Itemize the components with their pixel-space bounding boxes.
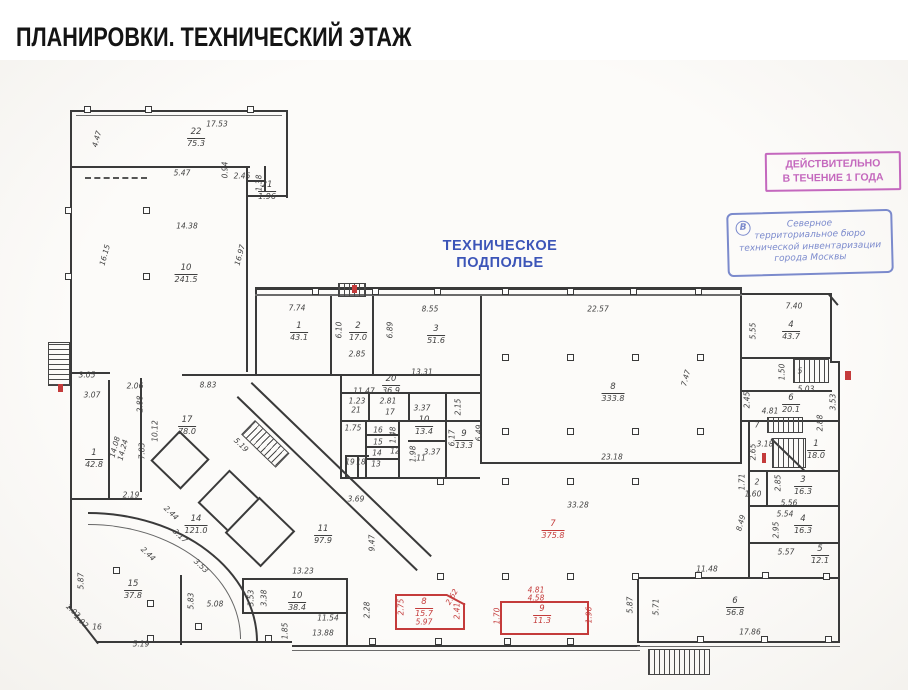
dimension-label: 5.57: [778, 548, 795, 556]
room-number: 15: [124, 580, 142, 591]
dimension-label: 13.23: [292, 567, 313, 575]
column: [265, 635, 272, 642]
room-label: 143.1: [290, 322, 308, 342]
dimension-label: 5.08: [207, 600, 224, 608]
dimension-label: 3.53: [829, 394, 837, 411]
room-area: 12.1: [811, 556, 829, 565]
dimension-label: 4.47: [91, 130, 103, 148]
column: [632, 478, 639, 485]
room-label: 443.7: [782, 321, 800, 341]
room-area: 18.0: [807, 451, 825, 460]
dimension-label: 2.15: [454, 399, 462, 416]
wall: [637, 641, 840, 643]
dimension-label: 3.37: [414, 404, 431, 412]
dimension-label: 5.83: [187, 593, 195, 610]
dimension-label: 9.47: [368, 535, 376, 552]
dimension-label: 3.07: [84, 391, 101, 399]
column: [195, 623, 202, 630]
wall: [246, 166, 248, 372]
dimension-label: 5.97: [416, 618, 433, 626]
room-area: 38.4: [288, 603, 306, 612]
wall: [70, 110, 288, 112]
column: [695, 288, 702, 295]
dimension-label: 3.37: [424, 448, 441, 456]
dimension-label: 13.31: [411, 368, 432, 376]
column: [502, 288, 509, 295]
dimension-label: 16: [92, 623, 102, 631]
dimension-label: 22.57: [587, 305, 608, 313]
dimension-label: 11.48: [696, 565, 717, 573]
bti-stamp-line4: города Москвы: [774, 252, 846, 264]
dimension-label: 1.60: [745, 490, 762, 498]
room-label: 316.3: [794, 476, 812, 496]
room-area: 1.96: [258, 192, 276, 201]
room-number: 7: [542, 520, 565, 531]
room-number: 4: [782, 321, 800, 332]
dimension-label: 3.53: [247, 590, 255, 607]
red-room-wall: [395, 594, 447, 596]
dimension-label: 2.65: [749, 444, 757, 461]
column: [437, 573, 444, 580]
wall-inner: [637, 646, 840, 647]
dimension-label: 5.87: [77, 573, 85, 590]
room-area: 78.0: [178, 427, 196, 436]
dimension-label: 16.97: [234, 244, 247, 267]
dimension-label: 5.19: [133, 640, 150, 648]
wall-inner: [292, 650, 640, 651]
column: [825, 636, 832, 643]
wall: [408, 392, 410, 420]
dimension-label: 13: [371, 460, 381, 468]
room-label: 1537.8: [124, 580, 142, 600]
dimension-label: 1.70: [493, 608, 501, 625]
dimension-label: 6.10: [335, 322, 343, 339]
validity-stamp: ДЕЙСТВИТЕЛЬНО В ТЕЧЕНИЕ 1 ГОДА: [765, 151, 902, 192]
dimension-label: 2.06: [127, 382, 144, 390]
column: [567, 354, 574, 361]
room-area: 17.0: [349, 333, 367, 342]
dimension-label: 1.98: [409, 446, 417, 463]
room-number: 6: [726, 597, 744, 608]
wall: [340, 420, 480, 422]
dimension-label: 16.15: [99, 244, 112, 267]
column: [697, 354, 704, 361]
column: [84, 106, 91, 113]
wall: [70, 110, 72, 608]
dimension-label: 2.81: [380, 397, 397, 405]
wall: [408, 440, 445, 442]
wall: [748, 470, 838, 472]
dimension-label: 7.83: [138, 443, 146, 460]
wall: [340, 477, 480, 479]
room-label: 416.3: [794, 515, 812, 535]
room-area: 75.3: [187, 139, 205, 148]
room-number: 3: [794, 476, 812, 487]
room-label: 656.8: [726, 597, 744, 617]
dimension-label: 17.53: [206, 120, 227, 128]
room-area: 241.5: [175, 275, 198, 284]
wall: [365, 422, 367, 477]
room-label: 2275.3: [187, 128, 205, 148]
dimension-label: 2.75: [397, 599, 405, 616]
room-area: 42.8: [85, 460, 103, 469]
room-number: 8: [415, 598, 433, 609]
room-area: 375.8: [542, 531, 565, 540]
dimension-label: 5.56: [781, 499, 798, 507]
dashed-wall: [85, 177, 147, 179]
wall: [368, 392, 370, 420]
wall: [830, 293, 832, 363]
room-number: 9: [533, 605, 551, 616]
dimension-label: 7: [755, 421, 760, 429]
wall: [480, 462, 742, 464]
page-title: ПЛАНИРОВКИ. ТЕХНИЧЕСКИЙ ЭТАЖ: [16, 22, 412, 53]
dimension-label: 8.55: [422, 305, 439, 313]
wall: [740, 287, 742, 464]
column: [435, 638, 442, 645]
column: [632, 573, 639, 580]
dimension-label: 2.45: [234, 172, 251, 180]
dimension-label: 13.88: [312, 629, 333, 637]
room-area: 121.0: [185, 526, 208, 535]
room-number: 17: [178, 416, 196, 427]
dimension-label: 1.50: [778, 364, 786, 381]
dimension-label: 5.71: [652, 599, 660, 616]
bti-stamp-line3: технической инвентаризации: [739, 240, 881, 254]
room-number: 9: [455, 430, 473, 441]
dimension-label: 18: [356, 458, 366, 466]
room-number: 1: [85, 449, 103, 460]
dimension-label: 5.47: [174, 169, 191, 177]
dimension-label: 3.05: [79, 371, 96, 379]
dimension-label: 17.86: [739, 628, 760, 636]
dimension-label: 4.58: [528, 594, 545, 602]
room-label: 1038.4: [288, 592, 306, 612]
room-label: 142.8: [85, 449, 103, 469]
technical-subfloor-line1: ТЕХНИЧЕСКОЕ: [443, 238, 558, 254]
column: [502, 478, 509, 485]
dimension-label: 4.81: [762, 407, 779, 415]
dimension-label: 6.49: [475, 425, 483, 442]
column: [434, 288, 441, 295]
wall: [346, 578, 348, 645]
staircase: [772, 438, 806, 468]
room-label: 512.1: [811, 545, 829, 565]
room-number: 11: [314, 525, 332, 536]
dimension-label: 16: [373, 426, 383, 434]
room-area: 11.3: [533, 616, 551, 625]
room-number: 5: [811, 545, 829, 556]
wall: [255, 374, 482, 376]
dimension-label: 2.19: [123, 491, 140, 499]
curved-wall-inner: [88, 524, 241, 639]
red-room-wall: [463, 603, 465, 630]
dimension-label: 17: [385, 408, 395, 416]
dimension-label: 2.88: [136, 396, 144, 413]
wall: [365, 458, 398, 460]
wall: [838, 361, 840, 643]
wall: [242, 578, 348, 580]
dimension-label: 7.74: [289, 304, 306, 312]
room-label: 351.6: [427, 325, 445, 345]
red-mark: [58, 384, 63, 392]
dimension-label: 10.12: [151, 420, 159, 441]
room-label: 8333.8: [602, 383, 625, 403]
wall: [108, 380, 110, 498]
dimension-label: 8.49: [735, 514, 747, 532]
dimension-label: 3.18: [757, 440, 774, 448]
room-number: 10: [288, 592, 306, 603]
room-area: 20.1: [782, 405, 800, 414]
room-area: 13.4: [415, 427, 433, 436]
room-label: 1197.9: [314, 525, 332, 545]
dimension-label: 2: [755, 478, 760, 486]
wall: [372, 296, 374, 376]
room-label: 217.0: [349, 322, 367, 342]
column: [632, 428, 639, 435]
bti-stamp-line1: Северное: [787, 218, 833, 229]
column: [630, 288, 637, 295]
room-label: 913.3: [455, 430, 473, 450]
wall: [748, 542, 838, 544]
technical-subfloor-line2: ПОДПОЛЬЕ: [456, 255, 543, 271]
column: [369, 638, 376, 645]
column: [567, 478, 574, 485]
column: [502, 354, 509, 361]
dimension-label: 7.40: [786, 302, 803, 310]
column: [567, 428, 574, 435]
dimension-label: 3.69: [348, 495, 365, 503]
room-area: 51.6: [427, 336, 445, 345]
room-area: 97.9: [314, 536, 332, 545]
dimension-label: 2.88: [816, 415, 824, 432]
staircase: [48, 342, 70, 386]
dimension-label: 5.55: [749, 323, 757, 340]
dimension-label: 1.85: [281, 623, 289, 640]
room-number: 6: [782, 394, 800, 405]
dimension-label: 0.94: [221, 162, 229, 179]
column: [143, 207, 150, 214]
dimension-label: 3.38: [260, 590, 268, 607]
room-area: 13.3: [455, 441, 473, 450]
dimension-label: 2.28: [363, 602, 371, 619]
validity-stamp-line2: В ТЕЧЕНИЕ 1 ГОДА: [782, 171, 883, 184]
dimension-label: 5.54: [777, 510, 794, 518]
wall: [637, 577, 838, 579]
wall-inner: [76, 115, 282, 116]
room-label: 911.3: [533, 605, 551, 625]
dimension-label: 11.54: [317, 614, 338, 622]
dimension-label: 21: [351, 406, 361, 414]
room-area: 37.8: [124, 591, 142, 600]
red-mark: [762, 453, 766, 463]
wall: [740, 293, 832, 295]
red-mark: [352, 285, 357, 293]
wall: [286, 110, 288, 198]
dimension-label: 6.89: [386, 322, 394, 339]
room-label: 620.1: [782, 394, 800, 414]
staircase: [767, 417, 803, 433]
floor-plan-drawing: ТЕХНИЧЕСКОЕ ПОДПОЛЬЕ ДЕЙСТВИТЕЛЬНО В ТЕЧ…: [0, 60, 908, 690]
dimension-label: 14: [372, 449, 382, 457]
column: [823, 573, 830, 580]
dimension-label: 2.45: [743, 392, 751, 409]
room-label: 815.7: [415, 598, 433, 618]
dimension-label: 1.48: [389, 427, 397, 444]
dimension-label: 5.87: [626, 597, 634, 614]
room-area: 43.7: [782, 332, 800, 341]
column: [143, 273, 150, 280]
column: [567, 288, 574, 295]
bti-stamp-letter: В: [735, 221, 750, 236]
room-number: 22: [187, 128, 205, 139]
column: [113, 567, 120, 574]
room-number: 20: [382, 375, 400, 386]
column: [567, 573, 574, 580]
room-number: 2: [349, 322, 367, 333]
room-number: 10: [175, 264, 198, 275]
room-area: 333.8: [602, 394, 625, 403]
wall: [637, 577, 639, 643]
column: [437, 478, 444, 485]
room-number: 10: [415, 416, 433, 427]
validity-stamp-line1: ДЕЙСТВИТЕЛЬНО: [785, 157, 880, 170]
room-label: 118.0: [807, 440, 825, 460]
dimension-label: 11.47: [353, 387, 374, 395]
column: [567, 638, 574, 645]
red-room-wall: [395, 628, 465, 630]
room-area: 43.1: [290, 333, 308, 342]
dimension-label: 2.85: [349, 350, 366, 358]
dimension-label: 1.71: [738, 474, 746, 491]
column: [502, 573, 509, 580]
dimension-label: 19: [345, 458, 355, 466]
scanned-floor-plan-page: { "title": "ПЛАНИРОВКИ. ТЕХНИЧЕСКИЙ ЭТАЖ…: [0, 0, 908, 690]
column: [65, 273, 72, 280]
dimension-label: 1.96: [585, 607, 593, 624]
room-label: 2036.9: [382, 375, 400, 395]
column: [372, 288, 379, 295]
room-area: 16.3: [794, 526, 812, 535]
column: [697, 428, 704, 435]
dimension-label: 5: [798, 367, 803, 375]
column: [761, 636, 768, 643]
dimension-label: 23.18: [601, 453, 622, 461]
wall: [255, 287, 257, 376]
red-mark: [845, 371, 851, 380]
wall: [292, 645, 640, 647]
column: [145, 106, 152, 113]
dimension-label: 8.83: [200, 381, 217, 389]
room-area: 36.9: [382, 386, 400, 395]
room-number: 14: [185, 515, 208, 526]
dimension-label: 6.17: [448, 430, 456, 447]
dimension-label: 15: [373, 438, 383, 446]
room-label: 10241.5: [175, 264, 198, 284]
dimension-label: 2.95: [772, 522, 780, 539]
dimension-label: 1.23: [349, 397, 366, 405]
dimension-label: 12: [390, 447, 400, 455]
room-number: 1: [290, 322, 308, 333]
dimension-label: 7.47: [680, 369, 692, 387]
wall: [740, 390, 832, 392]
wall-inner: [255, 294, 742, 296]
column: [762, 572, 769, 579]
technical-subfloor-label: ТЕХНИЧЕСКОЕ ПОДПОЛЬЕ: [425, 238, 575, 271]
staircase: [648, 649, 710, 675]
room-area: 16.3: [794, 487, 812, 496]
column: [65, 207, 72, 214]
column: [247, 106, 254, 113]
wall: [330, 296, 332, 376]
dimension-label: 14.38: [176, 222, 197, 230]
wall: [766, 470, 768, 505]
column: [312, 288, 319, 295]
room-label: 14121.0: [185, 515, 208, 535]
room-number: 8: [602, 383, 625, 394]
column: [147, 600, 154, 607]
room-label: 1778.0: [178, 416, 196, 436]
column: [632, 354, 639, 361]
column: [502, 428, 509, 435]
room-number: 3: [427, 325, 445, 336]
dimension-label: 2.41: [453, 603, 461, 620]
column: [697, 636, 704, 643]
room-number: 4: [794, 515, 812, 526]
bti-stamp: В Северное территориальное бюро техничес…: [726, 209, 894, 277]
room-label: 7375.8: [542, 520, 565, 540]
room-label: 1013.4: [415, 416, 433, 436]
room-area: 56.8: [726, 608, 744, 617]
room-number: 1: [807, 440, 825, 451]
wall: [255, 287, 742, 290]
staircase: [241, 420, 289, 468]
dimension-label: 1.75: [345, 424, 362, 432]
dimension-label: 5.03: [798, 385, 815, 393]
dimension-label: 2.85: [774, 475, 782, 492]
dimension-label: 33.28: [567, 501, 588, 509]
column: [504, 638, 511, 645]
dimension-label: 1.38: [255, 175, 263, 192]
dimension-label: 2.44: [162, 505, 179, 522]
